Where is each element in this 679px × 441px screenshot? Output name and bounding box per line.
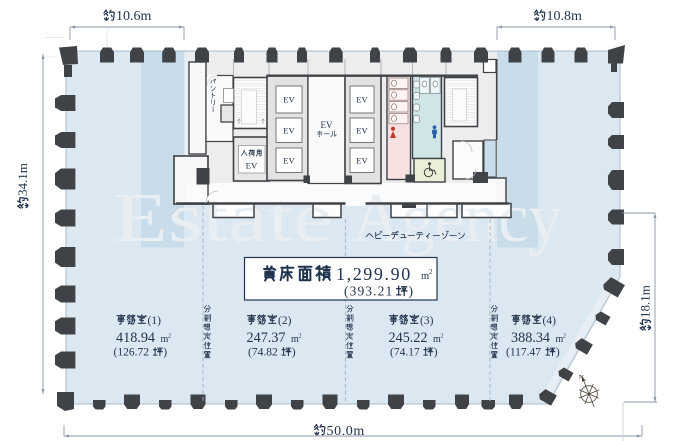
svg-text:EV: EV	[356, 155, 368, 165]
svg-text:(393.21: (393.21	[344, 284, 393, 299]
svg-text:m: m	[421, 271, 429, 282]
svg-text:): )	[556, 347, 560, 359]
svg-text:): )	[434, 347, 438, 359]
svg-text:(74.82: (74.82	[248, 347, 278, 359]
svg-text:388.34: 388.34	[511, 330, 550, 346]
svg-text:): )	[292, 347, 296, 359]
svg-text:10.8m: 10.8m	[547, 9, 583, 24]
svg-text:50.0m: 50.0m	[327, 424, 365, 439]
svg-text:): )	[409, 284, 414, 299]
svg-text:2: 2	[168, 334, 171, 340]
svg-text:2: 2	[429, 269, 433, 276]
svg-text:2: 2	[299, 334, 302, 340]
svg-text:247.37: 247.37	[247, 330, 286, 346]
svg-text:(74.17: (74.17	[390, 347, 420, 359]
svg-text:(3): (3)	[420, 315, 434, 327]
svg-text:(2): (2)	[278, 315, 292, 327]
svg-text:EV: EV	[356, 95, 368, 105]
svg-text:EV: EV	[356, 125, 368, 135]
svg-text:(117.47: (117.47	[506, 347, 541, 359]
svg-text:10.6m: 10.6m	[116, 9, 152, 24]
svg-text:EV: EV	[283, 155, 295, 165]
svg-text:18.1m: 18.1m	[638, 285, 653, 318]
svg-text:Estate: Estate	[113, 180, 333, 257]
svg-text:2: 2	[563, 334, 566, 340]
svg-text:1,299.90: 1,299.90	[336, 264, 412, 284]
svg-text:EV: EV	[246, 161, 258, 171]
svg-text:2: 2	[441, 334, 444, 340]
svg-text:EV: EV	[283, 125, 295, 135]
svg-text:Agency: Agency	[352, 180, 562, 257]
svg-text:(1): (1)	[148, 315, 162, 327]
svg-text:(126.72: (126.72	[114, 347, 150, 359]
svg-text:N: N	[579, 374, 584, 381]
svg-text:(4): (4)	[543, 315, 557, 327]
svg-text:EV: EV	[321, 120, 333, 130]
svg-text:EV: EV	[283, 95, 295, 105]
svg-text:): )	[163, 347, 167, 359]
svg-text:245.22: 245.22	[389, 330, 428, 346]
svg-text:418.94: 418.94	[116, 330, 155, 346]
svg-text:34.1m: 34.1m	[15, 163, 30, 196]
